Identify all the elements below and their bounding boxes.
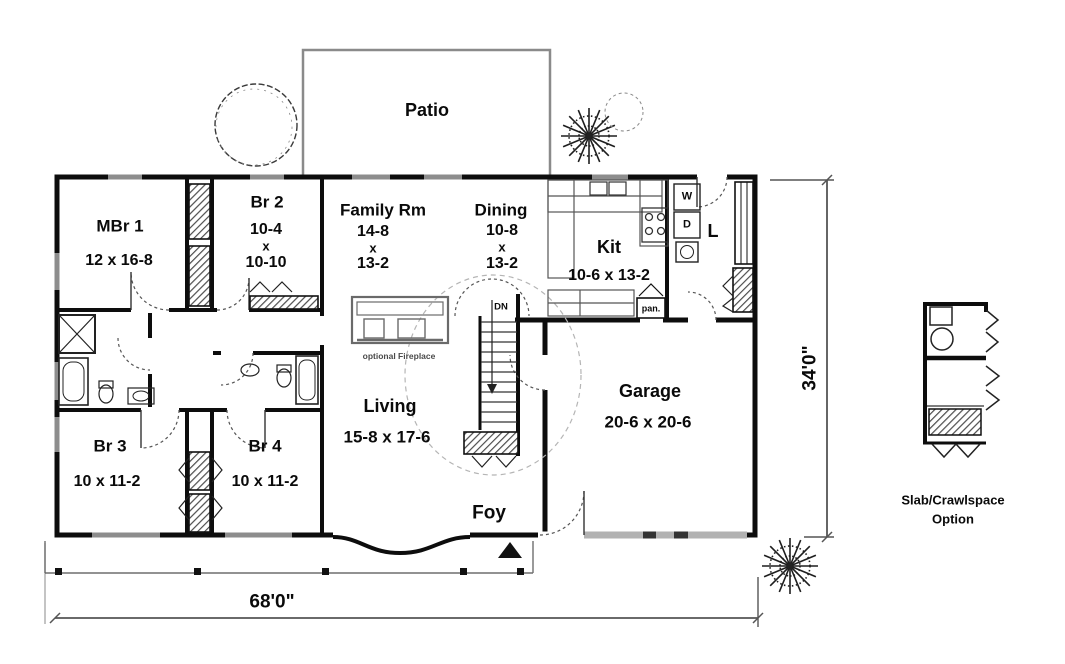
room-label-garage: Garage <box>619 382 681 400</box>
room-dims-br2-d: 10-10 <box>246 255 287 271</box>
room-label-dining: Dining <box>475 202 528 219</box>
overall-width-dimension: 68'0" <box>249 593 294 612</box>
room-dims-family-w: 14-8 <box>357 224 389 240</box>
slab-option-label-line2: Option <box>932 513 974 526</box>
room-dims-br3: 10 x 11-2 <box>74 474 141 490</box>
room-label-family: Family Rm <box>340 202 426 219</box>
room-label-kit: Kit <box>597 238 621 256</box>
optional-fireplace-label: optional Fireplace <box>363 352 436 361</box>
slab-option-diagram <box>923 302 999 457</box>
dryer-label: D <box>683 220 691 231</box>
patio-label: Patio <box>405 101 449 119</box>
room-label-mbr1: MBr 1 <box>96 218 143 235</box>
room-dims-family-d: 13-2 <box>357 256 389 272</box>
room-dims-kit: 10-6 x 13-2 <box>568 268 650 284</box>
entry-arrow-icon <box>498 542 522 558</box>
room-dims-br2-x: x <box>262 240 269 253</box>
room-dims-dining-w: 10-8 <box>486 223 518 239</box>
room-label-br3: Br 3 <box>93 438 126 455</box>
overall-depth-dimension: 34'0" <box>801 345 820 390</box>
pantry-label: pan. <box>642 305 661 314</box>
room-label-living: Living <box>364 397 417 415</box>
tree-top-right-icon <box>561 108 617 164</box>
room-dims-br2-w: 10-4 <box>250 222 282 238</box>
tree-left-icon <box>215 84 297 166</box>
room-dims-living: 15-8 x 17-6 <box>344 429 431 446</box>
room-dims-br4: 10 x 11-2 <box>232 474 299 490</box>
shrub-dashed-icon <box>605 93 643 131</box>
room-dims-dining-x: x <box>498 241 505 254</box>
curved-front-wall <box>333 537 470 553</box>
room-dims-dining-d: 13-2 <box>486 256 518 272</box>
room-label-foyer: Foy <box>472 504 506 523</box>
slab-option-label-line1: Slab/Crawlspace <box>901 494 1004 507</box>
washer-label: W <box>682 192 692 203</box>
stairs-dn-label: DN <box>494 302 508 312</box>
room-label-laundry: L <box>708 222 719 240</box>
floor-plan-page: Patio MBr 1 12 x 16-8 Br 2 10-4 x 10-10 … <box>0 0 1065 664</box>
tree-bottom-right-icon <box>762 538 818 594</box>
room-dims-family-x: x <box>369 242 376 255</box>
room-dims-garage: 20-6 x 20-6 <box>605 414 692 431</box>
room-label-br4: Br 4 <box>248 438 281 455</box>
room-label-br2: Br 2 <box>250 194 283 211</box>
floor-plan-drawing <box>0 0 1065 664</box>
porch-posts <box>55 568 524 575</box>
room-dims-mbr1: 12 x 16-8 <box>85 253 153 269</box>
porch-outline <box>45 541 533 573</box>
